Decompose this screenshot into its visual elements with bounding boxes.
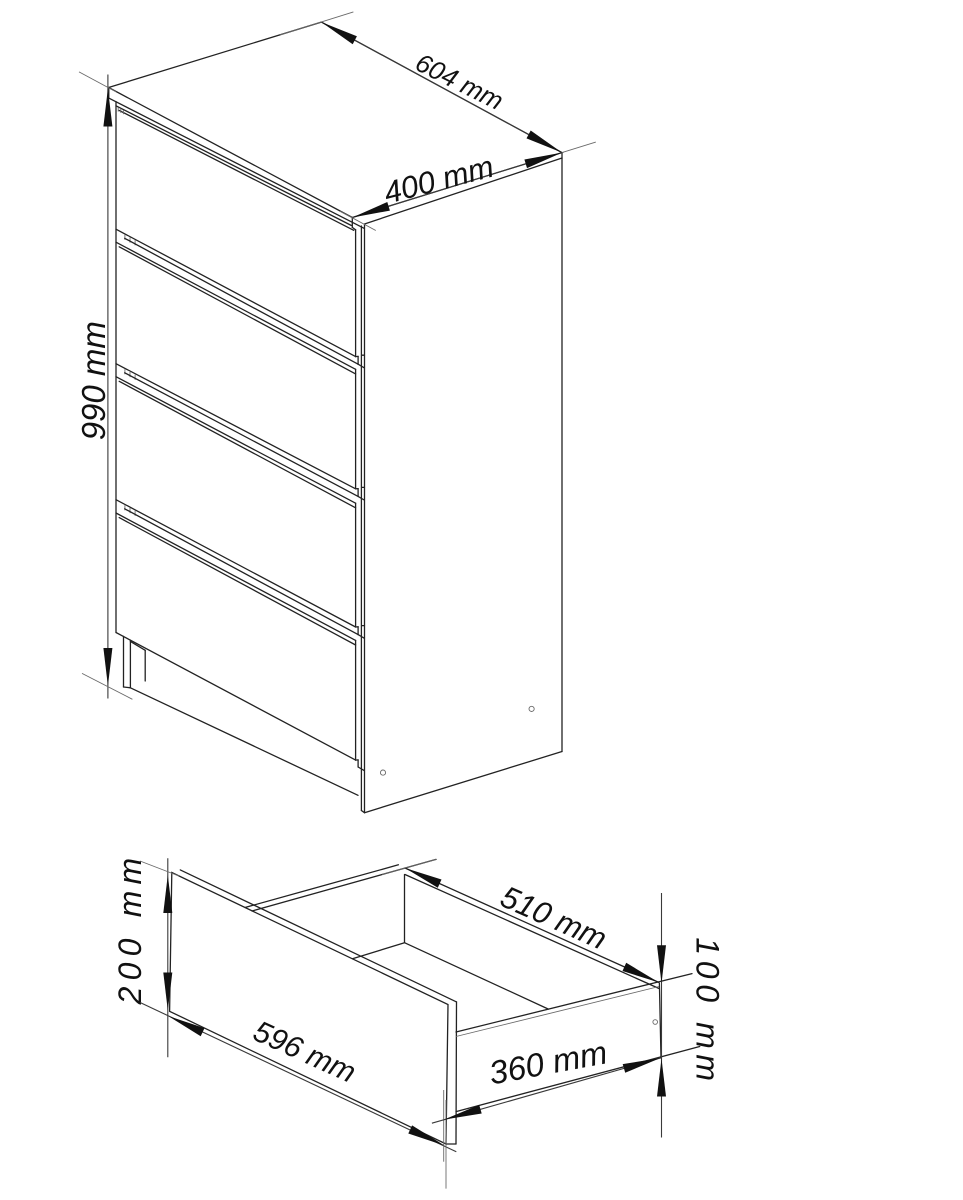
svg-text:200 mm: 200 mm — [112, 852, 148, 1006]
svg-text:990 mm: 990 mm — [75, 321, 112, 440]
svg-text:360 mm: 360 mm — [486, 1033, 610, 1091]
svg-text:510 mm: 510 mm — [495, 879, 612, 957]
svg-text:400 mm: 400 mm — [380, 149, 497, 211]
svg-text:596 mm: 596 mm — [248, 1015, 360, 1090]
svg-text:604 mm: 604 mm — [411, 47, 508, 116]
svg-text:100 mm: 100 mm — [690, 937, 726, 1086]
